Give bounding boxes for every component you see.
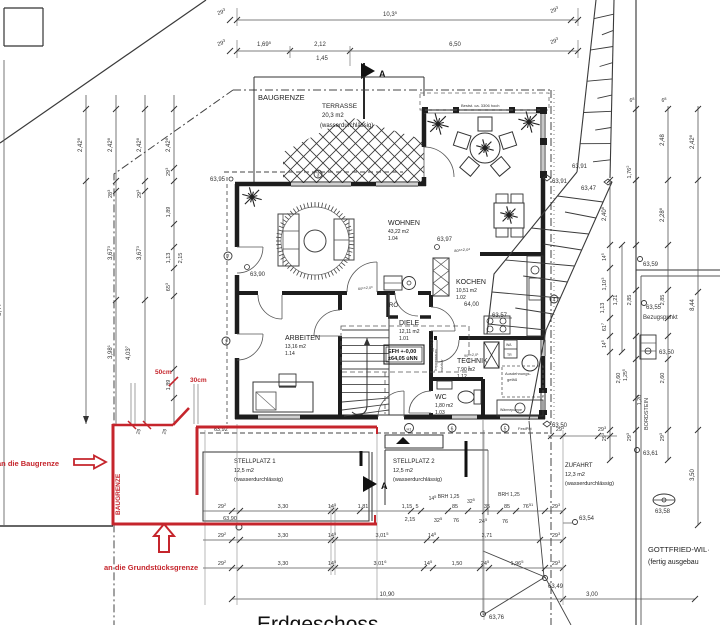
svg-text:(wasserdurchlässig): (wasserdurchlässig)	[393, 477, 442, 483]
svg-text:2,12: 2,12	[314, 42, 326, 48]
svg-text:(fertig ausgebau: (fertig ausgebau	[648, 559, 699, 566]
svg-text:BRH 1,25: BRH 1,25	[498, 492, 520, 498]
svg-text:63,59: 63,59	[643, 262, 659, 268]
svg-text:KOCHEN: KOCHEN	[456, 279, 486, 286]
svg-text:63,90: 63,90	[250, 272, 266, 278]
svg-text:ZUFAHRT: ZUFAHRT	[565, 463, 593, 469]
svg-text:A: A	[381, 481, 388, 491]
svg-text:3,30: 3,30	[278, 504, 289, 510]
svg-text:76: 76	[453, 518, 459, 524]
svg-text:RÖ: RÖ	[389, 302, 398, 309]
svg-text:63,61: 63,61	[643, 451, 659, 457]
svg-text:5: 5	[415, 504, 418, 510]
svg-text:10,90: 10,90	[379, 592, 395, 598]
svg-text:2,60: 2,60	[616, 373, 622, 384]
svg-text:BAUGRENZE: BAUGRENZE	[258, 93, 305, 102]
svg-text:85: 85	[452, 504, 458, 510]
svg-text:1.02: 1.02	[456, 295, 466, 301]
svg-text:nutzbar: nutzbar	[440, 359, 444, 372]
svg-text:63,54: 63,54	[579, 516, 595, 522]
svg-text:63,91: 63,91	[552, 179, 568, 185]
svg-text:63,90: 63,90	[223, 516, 237, 522]
svg-text:4: 4	[553, 298, 556, 304]
svg-text:7,90 m2: 7,90 m2	[457, 367, 475, 373]
svg-text:2,60: 2,60	[660, 373, 666, 384]
svg-text:63,97: 63,97	[437, 237, 453, 243]
svg-text:2,48: 2,48	[660, 134, 666, 146]
svg-text:BAUGRENZE: BAUGRENZE	[115, 473, 122, 515]
svg-text:3,30: 3,30	[278, 533, 289, 539]
svg-text:12,5 m2: 12,5 m2	[393, 468, 413, 474]
svg-text:13,16 m2: 13,16 m2	[285, 344, 306, 350]
svg-text:8,44: 8,44	[0, 304, 3, 316]
svg-text:63,50: 63,50	[659, 350, 675, 356]
svg-text:1,13: 1,13	[600, 303, 606, 314]
svg-text:1.04: 1.04	[388, 236, 398, 242]
svg-text:1,50: 1,50	[452, 561, 463, 567]
svg-text:WOHNEN: WOHNEN	[388, 220, 420, 227]
svg-text:an die Grundstücksgrenze: an die Grundstücksgrenze	[104, 563, 198, 572]
svg-text:7: 7	[227, 255, 230, 261]
svg-text:(wasserdurchlässig): (wasserdurchlässig)	[565, 481, 614, 487]
svg-text:Bezugspunkt: Bezugspunkt	[643, 315, 678, 321]
svg-text:64,00: 64,00	[464, 302, 480, 308]
svg-text:63,47: 63,47	[581, 186, 597, 192]
svg-text:85: 85	[504, 504, 510, 510]
svg-text:WC: WC	[435, 394, 447, 401]
svg-text:TERRASSE: TERRASSE	[322, 103, 358, 110]
svg-text:STELLPLATZ 2: STELLPLATZ 2	[393, 459, 435, 465]
svg-text:BORDSTEIN: BORDSTEIN	[644, 398, 650, 430]
svg-text:1,80 m2: 1,80 m2	[435, 403, 453, 409]
svg-text:63,76: 63,76	[489, 615, 505, 621]
svg-text:1: 1	[225, 340, 228, 346]
svg-text:63,91: 63,91	[572, 164, 588, 170]
svg-text:63,58: 63,58	[655, 509, 671, 515]
svg-text:2,15: 2,15	[405, 517, 416, 523]
svg-text:Ausdehnungs-: Ausdehnungs-	[505, 371, 531, 376]
svg-text:WA: WA	[506, 343, 512, 347]
svg-text:1.03: 1.03	[435, 410, 445, 416]
svg-text:1,21: 1,21	[613, 295, 619, 306]
svg-text:1.01: 1.01	[399, 336, 409, 342]
svg-text:2,15: 2,15	[178, 253, 184, 264]
svg-text:10,51 m2: 10,51 m2	[456, 288, 477, 294]
svg-text:50cm: 50cm	[155, 369, 172, 376]
svg-text:H1: H1	[406, 427, 412, 432]
svg-text:TECHNIK: TECHNIK	[457, 358, 488, 365]
svg-text:Bestst. ca. 3306 hoch: Bestst. ca. 3306 hoch	[461, 103, 499, 108]
svg-text:1,89: 1,89	[166, 207, 172, 218]
svg-text:76: 76	[502, 519, 508, 525]
svg-text:1,15: 1,15	[402, 504, 413, 510]
svg-text:TR: TR	[507, 353, 512, 357]
svg-text:EFH +-0,00: EFH +-0,00	[388, 349, 416, 355]
svg-text:Wärmepumpe: Wärmepumpe	[500, 408, 522, 412]
svg-text:GOTTFRIED-WIL·: GOTTFRIED-WIL·	[648, 545, 710, 554]
svg-text:1,13: 1,13	[166, 253, 172, 264]
svg-text:6: 6	[451, 427, 454, 433]
svg-text:3,30: 3,30	[278, 561, 289, 567]
svg-text:1,45: 1,45	[316, 56, 328, 62]
svg-text:3,50: 3,50	[690, 469, 696, 481]
svg-text:30cm: 30cm	[190, 377, 207, 384]
svg-text:6,50: 6,50	[449, 42, 461, 48]
svg-text:3,71: 3,71	[482, 533, 493, 539]
svg-text:gefäß: gefäß	[507, 377, 518, 382]
svg-text:5: 5	[504, 427, 507, 433]
svg-text:2,85: 2,85	[627, 295, 633, 306]
svg-text:STELLPLATZ 1: STELLPLATZ 1	[234, 459, 276, 465]
svg-text:±64,05 üNN: ±64,05 üNN	[388, 356, 418, 362]
svg-text:1,81: 1,81	[358, 504, 369, 510]
svg-text:1.14: 1.14	[285, 351, 295, 357]
svg-text:12,3 m2: 12,3 m2	[565, 472, 585, 478]
svg-text:ARBEITEN: ARBEITEN	[285, 335, 320, 342]
svg-text:an die Baugrenze: an die Baugrenze	[0, 459, 59, 468]
svg-text:8,44: 8,44	[690, 299, 696, 311]
svg-text:3: 3	[317, 173, 320, 179]
svg-text:1.12: 1.12	[457, 374, 467, 380]
svg-text:(wasserdurchlässig): (wasserdurchlässig)	[320, 123, 373, 129]
svg-text:DIELE: DIELE	[399, 320, 420, 327]
svg-text:Erdgeschoss: Erdgeschoss	[257, 613, 378, 625]
svg-text:3,00: 3,00	[586, 592, 598, 598]
svg-text:35: 35	[484, 504, 490, 510]
svg-text:20,3 m2: 20,3 m2	[322, 113, 344, 119]
svg-text:43,22 m2: 43,22 m2	[388, 229, 409, 235]
svg-text:12,11 m2: 12,11 m2	[399, 329, 420, 335]
svg-text:2,85: 2,85	[660, 295, 666, 306]
svg-text:(wasserdurchlässig): (wasserdurchlässig)	[234, 477, 283, 483]
svg-text:63,95: 63,95	[210, 177, 226, 183]
